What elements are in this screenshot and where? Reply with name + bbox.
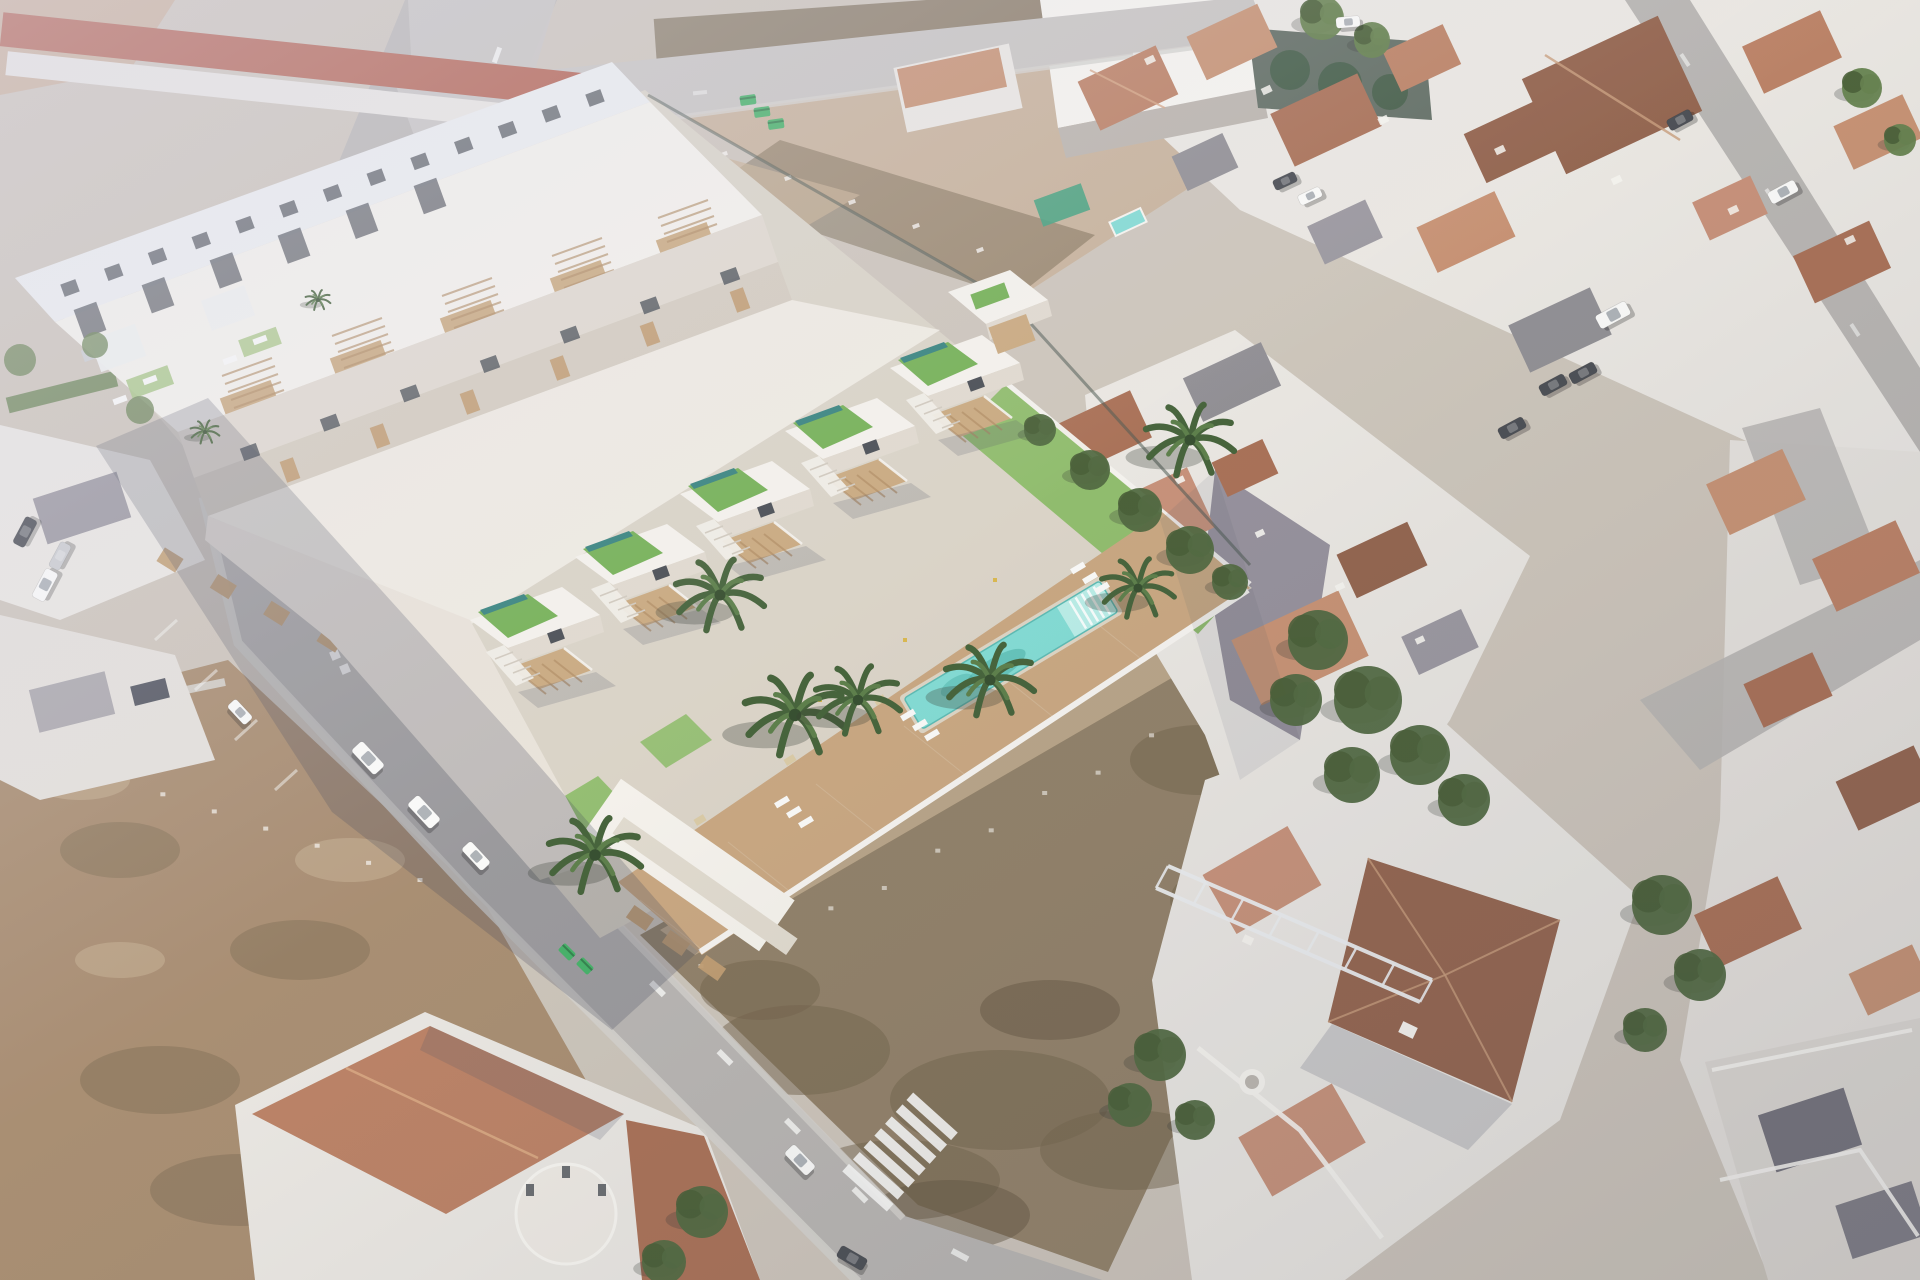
aerial-composite-image — [0, 0, 1920, 1280]
atmospheric-haze-overlay — [0, 0, 1920, 1280]
aerial-scene — [0, 0, 1920, 1280]
haze-veil — [0, 0, 1920, 1280]
